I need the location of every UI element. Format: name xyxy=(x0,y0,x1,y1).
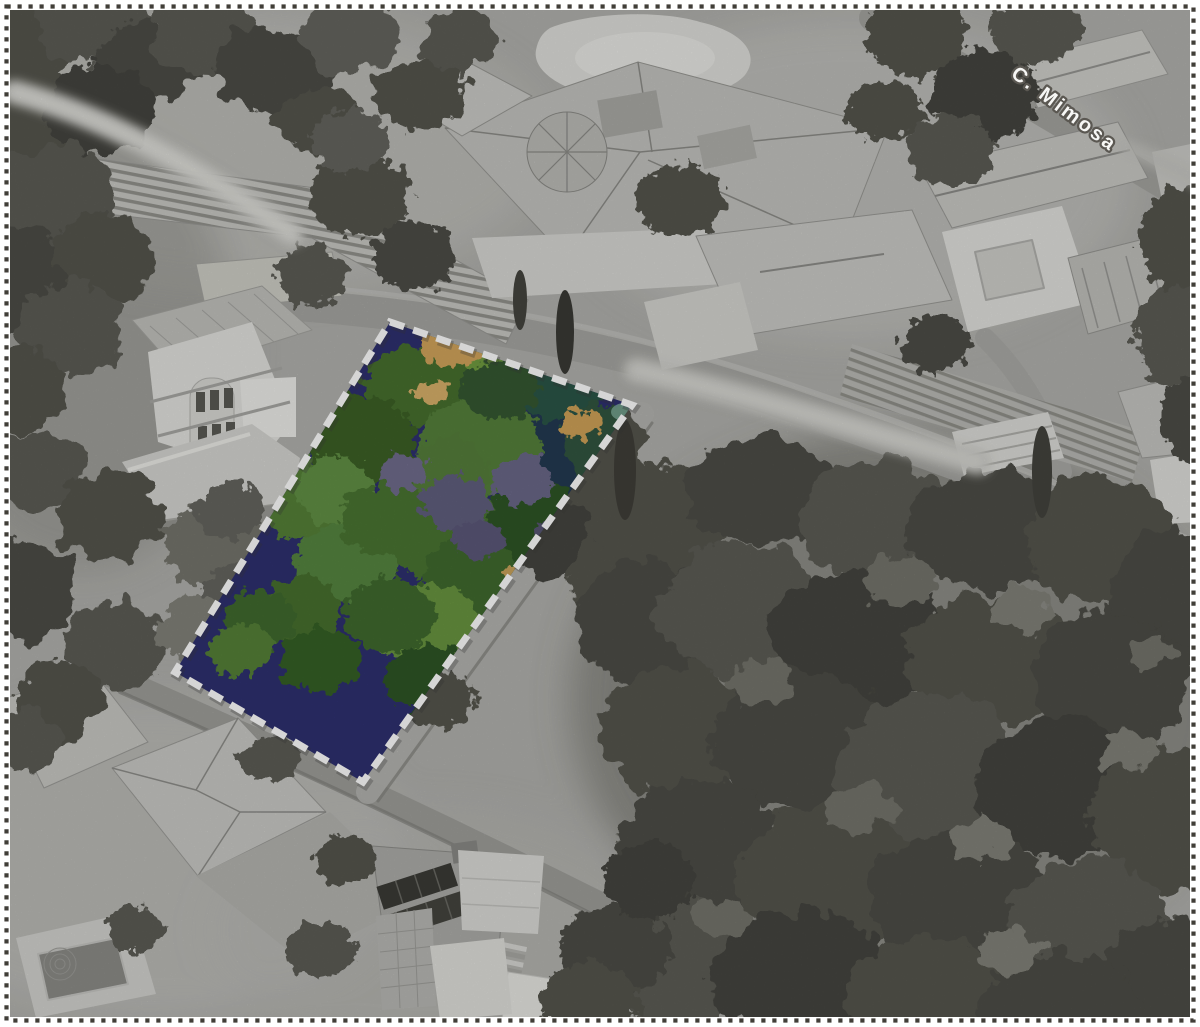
photo-grain xyxy=(10,10,1190,1017)
aerial-photo xyxy=(0,0,1200,1027)
aerial-map-canvas: C. Mimosa xyxy=(0,0,1200,1027)
annotated-aerial-figure: C. Mimosa xyxy=(0,0,1200,1027)
